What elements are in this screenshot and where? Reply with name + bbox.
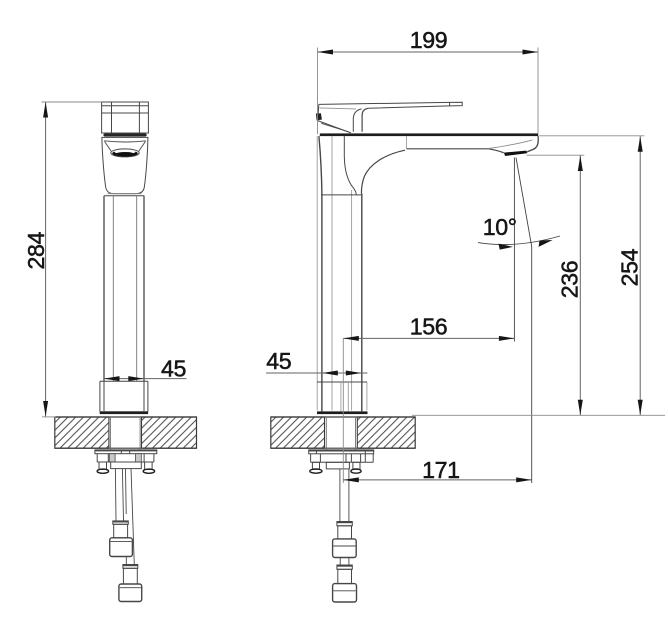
svg-text:236: 236 xyxy=(556,261,582,299)
svg-text:254: 254 xyxy=(617,248,643,286)
svg-text:284: 284 xyxy=(23,232,49,270)
svg-text:45: 45 xyxy=(161,356,186,382)
svg-text:199: 199 xyxy=(410,27,448,53)
svg-text:156: 156 xyxy=(410,314,448,340)
svg-text:171: 171 xyxy=(422,457,460,483)
svg-text:10°: 10° xyxy=(483,214,517,240)
svg-text:45: 45 xyxy=(266,348,291,374)
